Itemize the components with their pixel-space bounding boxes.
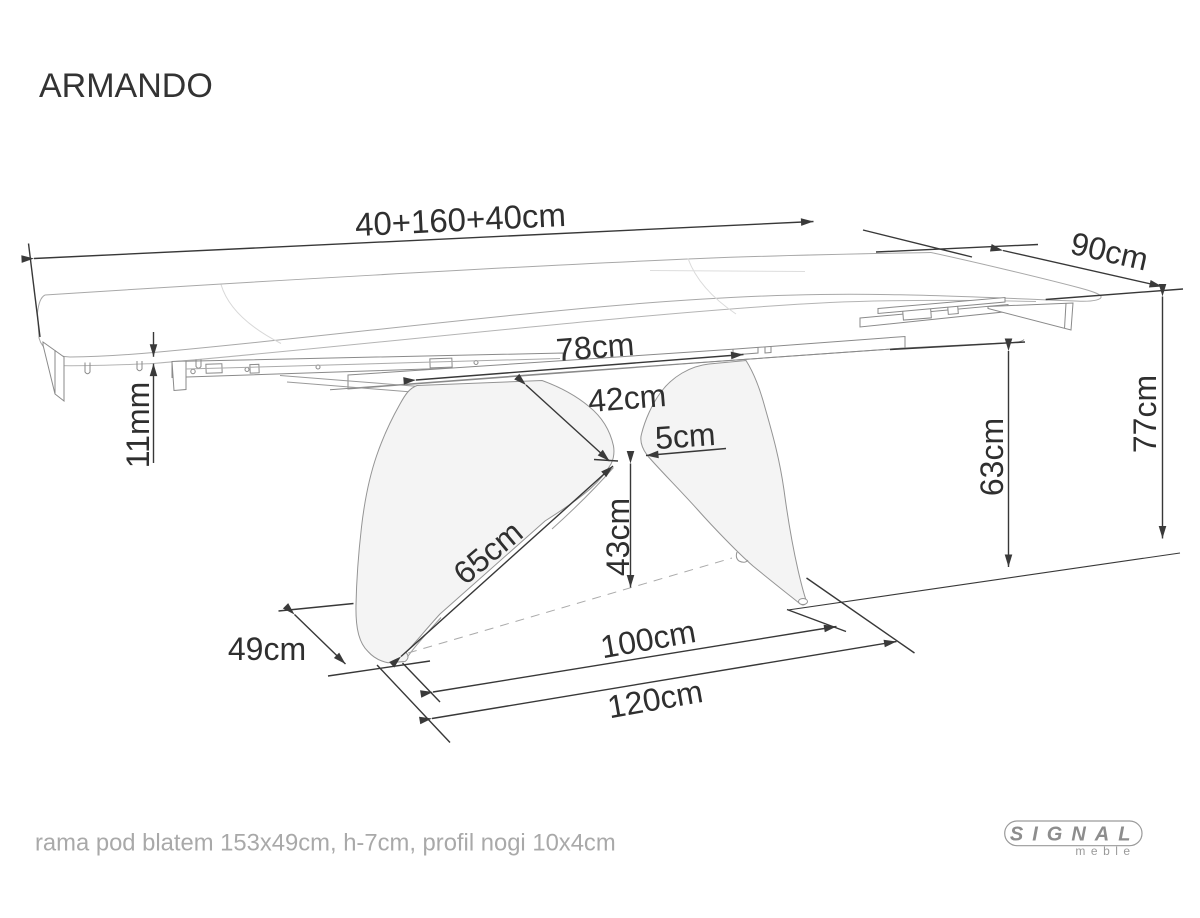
svg-text:rama pod blatem 153x49cm, h-7c: rama pod blatem 153x49cm, h-7cm, profil … — [35, 830, 616, 857]
svg-text:49cm: 49cm — [228, 631, 306, 667]
svg-text:43cm: 43cm — [600, 498, 636, 576]
svg-text:63cm: 63cm — [974, 418, 1010, 496]
svg-text:meble: meble — [1075, 844, 1135, 858]
svg-text:120cm: 120cm — [605, 673, 706, 725]
svg-text:40+160+40cm: 40+160+40cm — [354, 196, 567, 243]
svg-text:SIGNAL: SIGNAL — [1010, 824, 1140, 846]
svg-text:11mm: 11mm — [120, 382, 156, 469]
svg-text:42cm: 42cm — [587, 377, 668, 419]
svg-text:5cm: 5cm — [654, 416, 717, 456]
svg-text:77cm: 77cm — [1127, 375, 1163, 453]
svg-text:78cm: 78cm — [555, 326, 636, 368]
svg-text:90cm: 90cm — [1067, 225, 1151, 277]
svg-text:ARMANDO: ARMANDO — [39, 67, 213, 105]
svg-text:100cm: 100cm — [598, 613, 699, 665]
